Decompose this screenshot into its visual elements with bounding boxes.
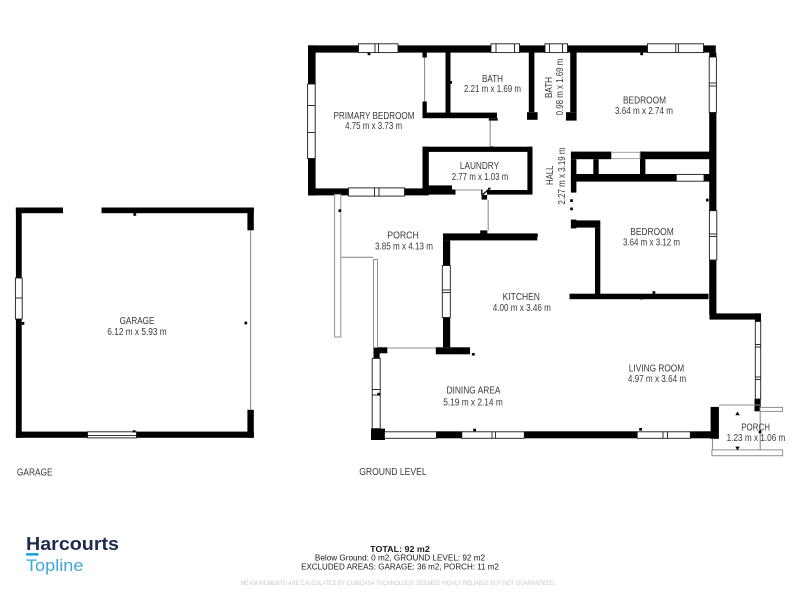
svg-text:2.21 m x 1.69 m: 2.21 m x 1.69 m xyxy=(464,84,521,95)
svg-text:3.64 m x 3.12 m: 3.64 m x 3.12 m xyxy=(623,238,680,249)
svg-text:MEASUREMENTS ARE CALCULATED BY: MEASUREMENTS ARE CALCULATED BY CUBICASA … xyxy=(241,580,556,587)
svg-text:0.98 m x 1.69 m: 0.98 m x 1.69 m xyxy=(555,59,566,116)
svg-text:Below Ground: 0 m2, GROUND LEV: Below Ground: 0 m2, GROUND LEVEL: 92 m2 xyxy=(315,553,486,562)
svg-text:PORCH: PORCH xyxy=(741,423,770,434)
svg-text:EXCLUDED AREAS: GARAGE: 36 m2,: EXCLUDED AREAS: GARAGE: 36 m2, PORCH: 11… xyxy=(301,563,499,572)
svg-text:LIVING ROOM: LIVING ROOM xyxy=(629,364,684,375)
svg-text:PORCH: PORCH xyxy=(387,230,419,241)
svg-text:1.23 m x 1.06 m: 1.23 m x 1.06 m xyxy=(727,433,786,444)
svg-text:GARAGE: GARAGE xyxy=(17,467,53,479)
svg-text:BEDROOM: BEDROOM xyxy=(630,227,674,238)
svg-text:KITCHEN: KITCHEN xyxy=(503,292,540,303)
svg-text:4.97 m x 3.64 m: 4.97 m x 3.64 m xyxy=(628,374,686,385)
svg-text:Topline: Topline xyxy=(26,556,83,575)
svg-text:DINING AREA: DINING AREA xyxy=(446,386,500,397)
svg-text:3.85 m x 4.13 m: 3.85 m x 4.13 m xyxy=(375,242,433,253)
svg-text:2.77 m x 1.03 m: 2.77 m x 1.03 m xyxy=(452,172,509,183)
svg-text:Harcourts: Harcourts xyxy=(26,533,119,554)
svg-text:BATH: BATH xyxy=(544,77,555,98)
svg-text:4.75 m x 3.73 m: 4.75 m x 3.73 m xyxy=(345,121,402,132)
svg-text:3.64 m x 2.74 m: 3.64 m x 2.74 m xyxy=(615,106,673,117)
svg-text:GARAGE: GARAGE xyxy=(120,316,155,327)
svg-text:HALL: HALL xyxy=(545,165,556,185)
svg-text:2.27 m x 3.19 m: 2.27 m x 3.19 m xyxy=(557,148,568,205)
svg-text:5.19 m x 2.14 m: 5.19 m x 2.14 m xyxy=(443,397,503,408)
svg-text:4.00 m x 3.46 m: 4.00 m x 3.46 m xyxy=(493,303,551,314)
svg-text:GROUND LEVEL: GROUND LEVEL xyxy=(359,466,427,478)
svg-text:6.12 m x 5.93 m: 6.12 m x 5.93 m xyxy=(107,327,166,338)
svg-text:LAUNDRY: LAUNDRY xyxy=(460,161,499,172)
